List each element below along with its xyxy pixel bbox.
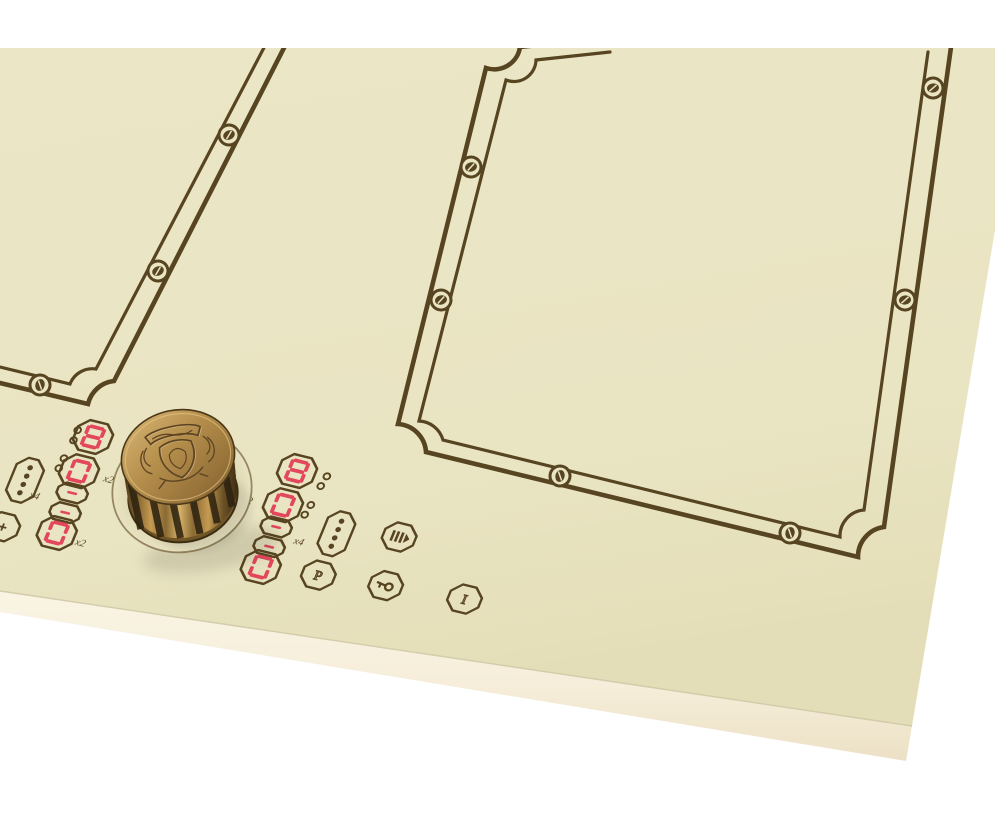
slotted-screw-icon bbox=[922, 77, 945, 100]
cooktop-product-render: x2 x4 x2 bbox=[0, 0, 995, 815]
slotted-screw-icon bbox=[894, 289, 917, 312]
